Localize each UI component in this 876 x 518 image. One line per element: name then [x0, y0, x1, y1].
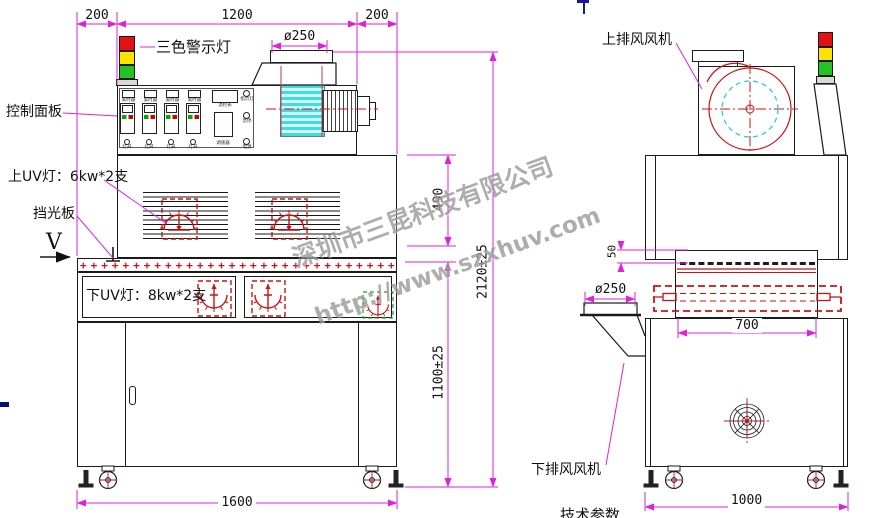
warning-light-yellow — [119, 51, 135, 65]
power-label: 电源 — [239, 146, 255, 151]
hour-meter-4[interactable] — [188, 90, 201, 98]
warning-light-red — [119, 36, 135, 51]
cabinet-door-line-right — [358, 322, 359, 467]
door-handle — [129, 386, 136, 405]
warning-light-base — [116, 79, 138, 86]
dim-width: 1600 — [77, 496, 397, 509]
blower-motor — [322, 90, 358, 132]
hour-meter-label-3: 累时器 — [163, 99, 182, 104]
label-view-arrow: V — [46, 231, 62, 255]
stop-label: 急停 — [239, 120, 255, 125]
label-top-fan: 上排风风机 — [602, 33, 672, 48]
temp-meter[interactable] — [212, 90, 238, 103]
dim-gap: 50 — [607, 237, 618, 267]
uv-controller-2[interactable] — [142, 103, 157, 134]
hour-meter-label-1: 累时器 — [119, 99, 138, 104]
side-warning-red — [818, 32, 833, 47]
label-control-panel: 控制面板 — [6, 105, 62, 120]
power-button[interactable] — [243, 138, 250, 145]
dim-top-left: 200 — [77, 9, 117, 22]
dim-depth: 1000 — [645, 494, 848, 507]
flex-duct-front — [280, 66, 325, 137]
lamp-on-label-1: 灯开 — [118, 146, 136, 151]
speed-label: 调速器 — [210, 142, 236, 147]
dim-top-mid: 1200 — [117, 9, 357, 22]
label-upper-uv: 上UV灯：6kw*2支 — [8, 170, 128, 185]
dim-belt-width: 700 — [678, 319, 816, 332]
lamp-on-label-2: 灯开 — [140, 146, 158, 151]
indicator-lamp — [243, 90, 250, 97]
cabinet-door-line-left — [125, 322, 126, 467]
side-body-strip-left — [655, 155, 656, 260]
dim-duct-side: ø250 — [583, 283, 638, 296]
conveyor-tunnel — [675, 250, 818, 318]
exhaust-flange-front — [270, 50, 333, 63]
dim-top-right: 200 — [357, 9, 397, 22]
side-cabinet-line-right — [843, 318, 844, 467]
hour-meter-label-2: 累时器 — [141, 99, 160, 104]
lamp-on-label-3: 灯开 — [162, 146, 180, 151]
left-edge-mark — [0, 402, 9, 407]
uv-controller-1[interactable] — [120, 103, 135, 134]
top-fan-housing — [698, 66, 795, 155]
motor-shaft — [369, 102, 376, 120]
label-baffle: 挡光板 — [33, 207, 75, 222]
side-cabinet — [645, 318, 848, 467]
top-edge-mark — [577, 0, 589, 3]
hour-meter-3[interactable] — [166, 90, 179, 98]
label-bottom-fan: 下排风风机 — [531, 463, 601, 478]
uv-machine-drawing: 累时器 累时器 累时器 累时器 温控表 调速器 指示灯 急停 电源 灯开 灯开 … — [0, 0, 876, 518]
louver-panel-left — [143, 192, 228, 242]
side-warning-green — [818, 61, 833, 76]
uv-controller-4[interactable] — [186, 103, 201, 134]
warning-light-green — [119, 65, 135, 79]
hour-meter-label-4: 累时器 — [185, 99, 204, 104]
side-body-top — [645, 155, 848, 260]
stop-button[interactable] — [243, 112, 250, 119]
indicator-label: 指示灯 — [239, 98, 255, 103]
side-conveyor-clips — [680, 262, 815, 265]
label-lower-uv: 下UV灯：8kw*2支 — [86, 289, 206, 304]
dim-table-height: 1100±25 — [433, 338, 446, 408]
side-warning-base — [816, 76, 835, 84]
hour-meter-2[interactable] — [144, 90, 157, 98]
lamp-on-label-4: 灯开 — [184, 146, 202, 151]
uv-controller-3[interactable] — [164, 103, 179, 134]
side-cabinet-line-left — [650, 318, 651, 467]
hour-meter-1[interactable] — [122, 90, 135, 98]
panel-switch-box[interactable] — [214, 112, 233, 137]
conveyor-clips: ++++++++++++++++++++++++++++++ — [80, 260, 396, 271]
side-body-strip-right — [838, 155, 839, 260]
dim-duct-front: ø250 — [272, 30, 327, 43]
label-cut-footer: 技术参数 — [560, 507, 620, 518]
label-warning-tower: 三色警示灯 — [156, 39, 231, 56]
side-warning-yellow — [818, 47, 833, 61]
temp-meter-label: 温控表 — [212, 104, 238, 109]
